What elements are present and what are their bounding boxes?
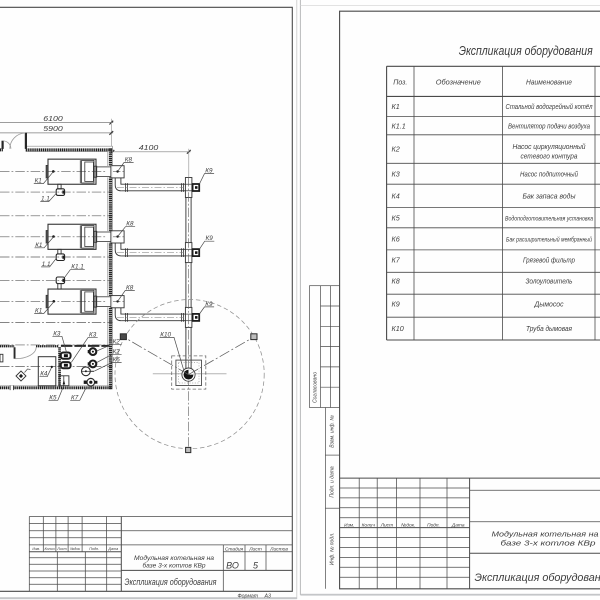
svg-text:Модульная котельная на: Модульная котельная на <box>134 555 215 562</box>
svg-text:Согласовано: Согласовано <box>313 372 319 403</box>
svg-text:Грязевой фильтр: Грязевой фильтр <box>523 255 575 264</box>
svg-text:Изм.: Изм. <box>344 522 354 528</box>
svg-text:К5: К5 <box>392 214 401 223</box>
svg-text:Экспликация оборудования: Экспликация оборудования <box>475 572 600 584</box>
svg-text:К4: К4 <box>392 192 400 201</box>
svg-text:Бак запаса воды: Бак запаса воды <box>523 192 577 201</box>
svg-text:Насос циркуляционный: Насос циркуляционный <box>513 142 586 151</box>
svg-text:Водоподготовительная установка: Водоподготовительная установка <box>505 215 593 223</box>
svg-text:Взам. инф. №: Взам. инф. № <box>330 415 336 448</box>
svg-text:К7: К7 <box>392 255 401 264</box>
svg-text:Дата: Дата <box>107 547 118 551</box>
svg-text:Подп.: Подп. <box>427 522 440 528</box>
svg-text:Наименование: Наименование <box>526 80 572 87</box>
svg-text:Вентилятор подачи воздуха: Вентилятор подачи воздуха <box>508 121 590 130</box>
svg-text:ВО: ВО <box>226 560 239 570</box>
svg-text:Изм.: Изм. <box>32 547 40 551</box>
svg-text:Колич: Колич <box>45 547 55 551</box>
svg-text:К10: К10 <box>392 324 404 333</box>
svg-text:Подп. и дата: Подп. и дата <box>330 466 336 498</box>
svg-text:Модульная котельная на: Модульная котельная на <box>492 531 599 539</box>
svg-text:К1: К1 <box>392 102 400 111</box>
svg-text:К6: К6 <box>392 235 400 244</box>
svg-text:Поз.: Поз. <box>393 80 407 87</box>
svg-text:5900: 5900 <box>43 126 63 133</box>
svg-text:Экспликация оборудования: Экспликация оборудования <box>459 43 593 58</box>
svg-text:№док: №док <box>70 547 80 551</box>
svg-text:базе 3-х котлов КВр: базе 3-х котлов КВр <box>501 539 596 547</box>
svg-text:Насос подпиточный: Насос подпиточный <box>520 169 578 178</box>
svg-text:Экспликация оборудования: Экспликация оборудования <box>125 577 217 587</box>
svg-text:К2: К2 <box>392 145 400 154</box>
svg-text:Бак расширительный мембранный: Бак расширительный мембранный <box>506 236 592 244</box>
svg-text:Стальной водогрейный котёл: Стальной водогрейный котёл <box>506 102 593 111</box>
svg-text:Лист: Лист <box>56 547 67 551</box>
svg-text:Стадия: Стадия <box>225 546 244 552</box>
svg-text:К9: К9 <box>392 300 400 309</box>
svg-text:4100: 4100 <box>139 145 159 152</box>
svg-text:К3: К3 <box>392 169 400 178</box>
svg-text:Лист: Лист <box>248 546 262 552</box>
svg-text:Лист: Лист <box>380 522 393 528</box>
svg-text:Листов: Листов <box>269 546 288 552</box>
svg-text:Дата: Дата <box>451 522 465 528</box>
svg-text:Колич: Колич <box>362 522 376 528</box>
svg-text:Формат: Формат <box>238 594 259 600</box>
svg-text:Дымосос: Дымосос <box>534 300 564 309</box>
svg-text:сетевого контура: сетевого контура <box>521 151 578 160</box>
svg-text:К1.1: К1.1 <box>392 121 406 130</box>
svg-text:Золоуловитель: Золоуловитель <box>526 277 573 286</box>
svg-text:базе 3-х котлов КВр: базе 3-х котлов КВр <box>143 563 207 570</box>
svg-text:А3: А3 <box>264 594 271 600</box>
svg-text:К8: К8 <box>392 277 400 286</box>
svg-text:Обозначение: Обозначение <box>436 79 481 87</box>
svg-text:№док.: №док. <box>401 522 415 528</box>
svg-text:Инф. № подл.: Инф. № подл. <box>330 533 336 566</box>
svg-text:6100: 6100 <box>43 116 63 123</box>
svg-text:Труба дымовая: Труба дымовая <box>526 324 572 333</box>
svg-text:Подп.: Подп. <box>89 547 99 551</box>
